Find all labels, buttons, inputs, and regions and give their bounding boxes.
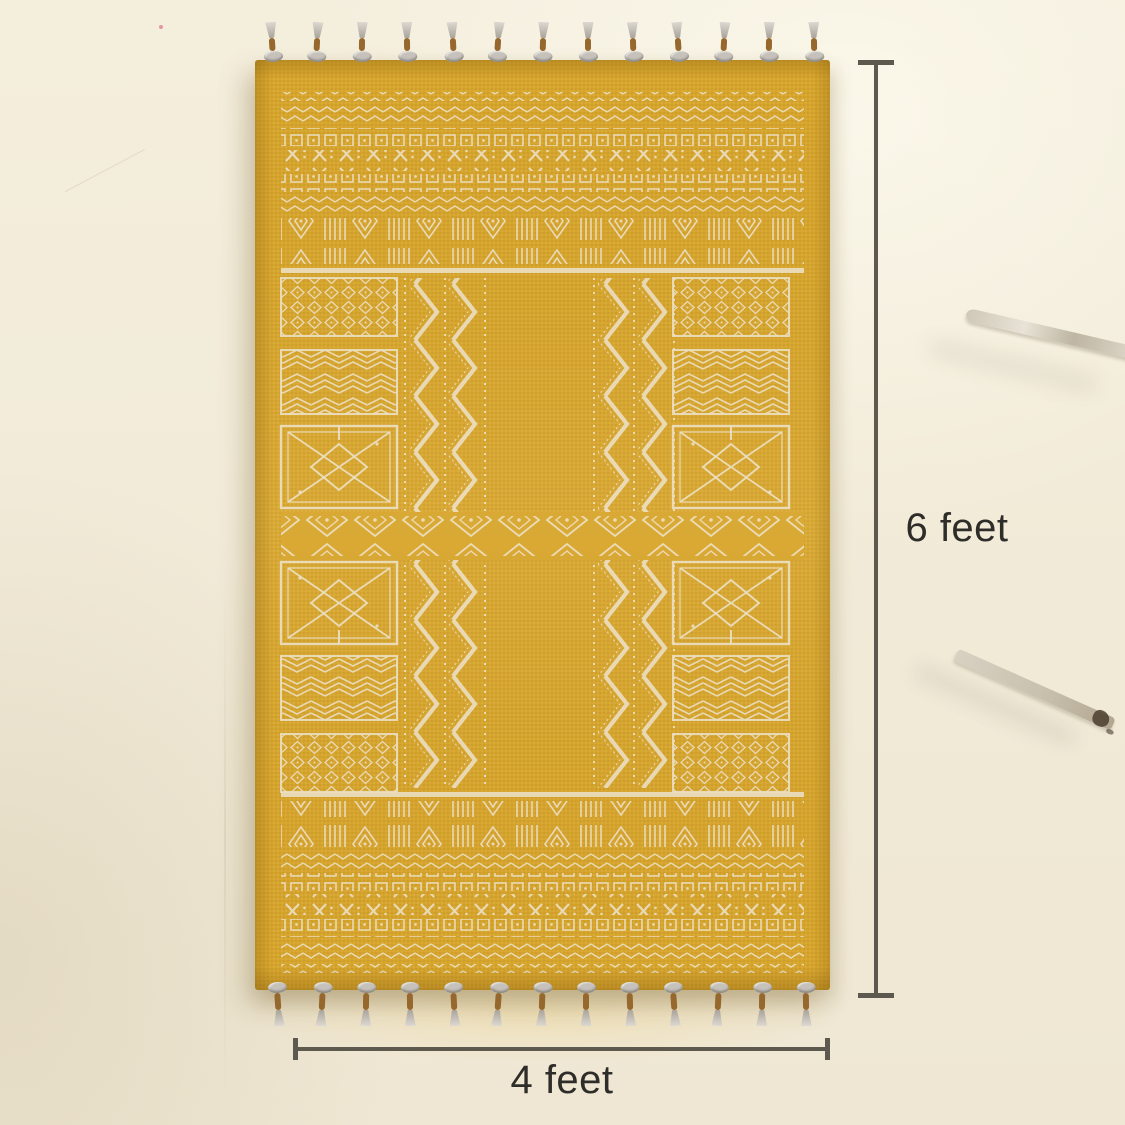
tassel (311, 982, 333, 1027)
width-dimension-line (293, 1038, 830, 1060)
tassel (442, 22, 464, 63)
tassel-tuft (580, 1010, 593, 1026)
tassel (486, 21, 509, 62)
tassel (397, 22, 418, 62)
tassel-tuft (626, 22, 640, 38)
tassel-stem (274, 993, 281, 1010)
tassel-stem (450, 993, 457, 1010)
tassel-tuft (404, 1010, 417, 1026)
dimension-line-vertical (874, 62, 878, 996)
tassel-knot (313, 982, 333, 994)
tassel (713, 22, 735, 63)
tassel-tuft (537, 22, 551, 38)
tassel-knot (489, 981, 509, 993)
tassel-knot (443, 982, 463, 994)
tassel-knot (579, 51, 598, 62)
tassel-tuft (314, 1010, 328, 1027)
tassel-tuft (359, 1010, 372, 1026)
tassel-stem (759, 993, 765, 1010)
tassel-stem (627, 993, 634, 1010)
rug (255, 60, 830, 990)
tassel-stem (766, 38, 772, 51)
tassel-knot (307, 50, 327, 62)
tassel-knot (357, 982, 376, 993)
wooden-stick-lower (953, 649, 1115, 731)
tassel (804, 22, 825, 62)
tassel-stem (494, 38, 501, 51)
tassel (758, 22, 779, 62)
tassel-stem (539, 993, 546, 1010)
tassel (306, 22, 328, 63)
tassel (356, 982, 377, 1026)
tassel-stem (269, 38, 276, 51)
tassel-knot (805, 51, 824, 62)
tassel-knot (753, 982, 772, 993)
tassel-stem (495, 993, 502, 1010)
bottom-tassels (268, 982, 816, 1024)
tassel-knot (709, 982, 729, 994)
tassel-knot (444, 50, 464, 62)
height-dimension-label: 6 feet (887, 506, 1027, 551)
tassel-knot (713, 50, 733, 62)
tassel-tuft (668, 1010, 682, 1027)
tassel-stem (404, 38, 410, 51)
tassel-stem (359, 38, 365, 51)
tassel-stem (675, 38, 682, 51)
photo-stage: 6 feet 4 feet (0, 0, 1125, 1125)
tassel-tuft (717, 22, 731, 39)
tassel-tuft (624, 1010, 638, 1026)
tassel (261, 21, 284, 62)
tassel-tuft (490, 1010, 504, 1027)
tassel-tuft (264, 22, 278, 39)
tassel-stem (630, 38, 636, 51)
tassel-stem (314, 38, 321, 51)
tassel-stem (803, 993, 809, 1010)
tassel-tuft (272, 1010, 286, 1027)
tassel-tuft (807, 22, 820, 38)
tassel-knot (263, 50, 283, 62)
tassel (266, 981, 289, 1026)
tassel-stem (407, 993, 413, 1010)
tassel-tuft (492, 22, 506, 39)
tassel-knot (624, 51, 643, 63)
tassel-tuft (311, 22, 325, 39)
tassel-tuft (710, 1010, 724, 1027)
tassel-knot (352, 51, 371, 62)
backdrop-crease (224, 575, 226, 1105)
tassel-knot (670, 50, 690, 62)
tassel-stem (715, 993, 722, 1010)
tassel-tuft (800, 1010, 813, 1026)
tassel-knot (663, 981, 683, 993)
tassel (578, 22, 598, 62)
tassel-stem (363, 993, 369, 1010)
backdrop-scratch (65, 149, 145, 192)
tassel-tuft (535, 1010, 549, 1026)
tassel-stem (585, 38, 591, 51)
tassel (752, 982, 773, 1026)
tassel-knot (796, 982, 815, 993)
tassel (667, 21, 690, 62)
tassel-stem (540, 38, 546, 51)
tassel (531, 982, 553, 1027)
tassel-tuft (445, 22, 459, 39)
tassel-knot (533, 982, 552, 994)
dimension-cap-right (825, 1038, 830, 1060)
rug-pattern (255, 60, 830, 990)
tassel (796, 982, 817, 1026)
tassel-tuft (448, 1010, 462, 1027)
tassel (707, 982, 729, 1027)
tassel-knot (533, 51, 552, 63)
tassel-knot (267, 981, 287, 993)
tassel-stem (811, 38, 817, 51)
tassel-stem (583, 993, 589, 1010)
tassel-knot (759, 51, 778, 62)
tassel-stem (449, 38, 456, 51)
tassel (532, 22, 553, 63)
tassel (662, 981, 685, 1026)
tassel-knot (620, 982, 639, 994)
wooden-stick-upper (965, 308, 1125, 359)
tassel-tuft (401, 22, 414, 38)
tassel-tuft (755, 1010, 768, 1026)
tassel-knot (400, 982, 419, 993)
dimension-line-horizontal (295, 1047, 828, 1051)
width-dimension-label: 4 feet (482, 1058, 642, 1103)
tassel (576, 982, 596, 1026)
backdrop-speck (159, 25, 163, 29)
tassel (623, 22, 644, 63)
tassel (443, 982, 465, 1027)
tassel-knot (398, 51, 417, 62)
tassel-stem (319, 993, 326, 1010)
tassel-tuft (582, 22, 595, 38)
tassel (400, 982, 421, 1026)
tassel-stem (720, 38, 727, 51)
tassel-tuft (356, 22, 369, 38)
tassel (352, 22, 373, 62)
tassel-knot (577, 982, 596, 993)
tassel (619, 982, 641, 1027)
top-tassels (262, 24, 824, 62)
tassel-tuft (671, 22, 685, 39)
tassel (486, 981, 509, 1026)
tassel-stem (670, 993, 677, 1010)
dimension-cap-bottom (858, 993, 894, 998)
tassel-tuft (762, 22, 775, 38)
tassel-knot (487, 50, 507, 62)
